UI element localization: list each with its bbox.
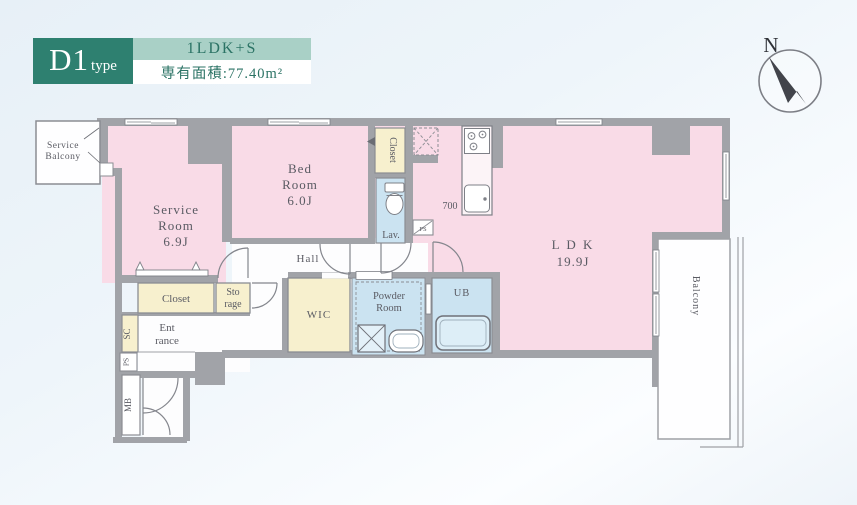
closet-hall-label: Closet (162, 293, 190, 305)
corner-box (100, 163, 113, 176)
washing-machine-icon (358, 325, 385, 352)
ps-left-label: PS (122, 358, 131, 366)
service-room-label-3: 6.9J (163, 234, 188, 249)
entrance-label-1: Ent (159, 322, 174, 334)
service-balcony-label-1: Service (47, 141, 79, 151)
compass-circle (759, 50, 821, 112)
service-room-label-1: Service (153, 202, 199, 217)
storage-label-1: Sto (226, 287, 239, 298)
kitchen-dimension-label: 700 (443, 201, 458, 212)
powder-room-label-1: Powder (373, 291, 406, 302)
bedroom-label-2: Room (282, 177, 318, 192)
floorplan-drawing: N Service Balcony Service Room 6.9J Bed … (0, 0, 857, 505)
service-room-label-2: Room (158, 218, 194, 233)
kitchen-counter (462, 126, 492, 215)
service-balcony-label-2: Balcony (45, 152, 80, 162)
bedroom-label-1: Bed (288, 161, 312, 176)
ub-label: UB (454, 288, 471, 299)
floorplan-page: D1 type 1LDK+S 専有面積:77.40m² (0, 0, 857, 505)
compass: N (759, 33, 821, 112)
closet-bedroom-label: Closet (387, 137, 398, 163)
powder-sink-icon (389, 330, 423, 352)
ldk-label-1: L D K (552, 237, 595, 252)
balcony-area (658, 239, 730, 439)
balcony-label: Balcony (690, 276, 701, 316)
entrance-label-2: rance (155, 335, 179, 347)
powder-room-label-2: Room (376, 303, 402, 314)
toilet-icon (385, 183, 404, 215)
bedroom-label-3: 6.0J (287, 193, 312, 208)
mb-label: MB (123, 398, 133, 412)
stove-icon (465, 129, 490, 154)
ldk-label-2: 19.9J (557, 254, 590, 269)
ub-door (426, 284, 431, 314)
sc-label: SC (122, 328, 132, 339)
compass-north-label: N (763, 33, 778, 57)
wic-label: WIC (307, 309, 331, 321)
kitchen-sink-icon (465, 185, 490, 212)
ps-lav-label: PS (419, 226, 427, 233)
hall-label: Hall (297, 253, 320, 265)
storage-label-2: rage (224, 299, 242, 310)
lav-label: Lav. (382, 230, 399, 241)
bathtub-icon (436, 316, 490, 350)
